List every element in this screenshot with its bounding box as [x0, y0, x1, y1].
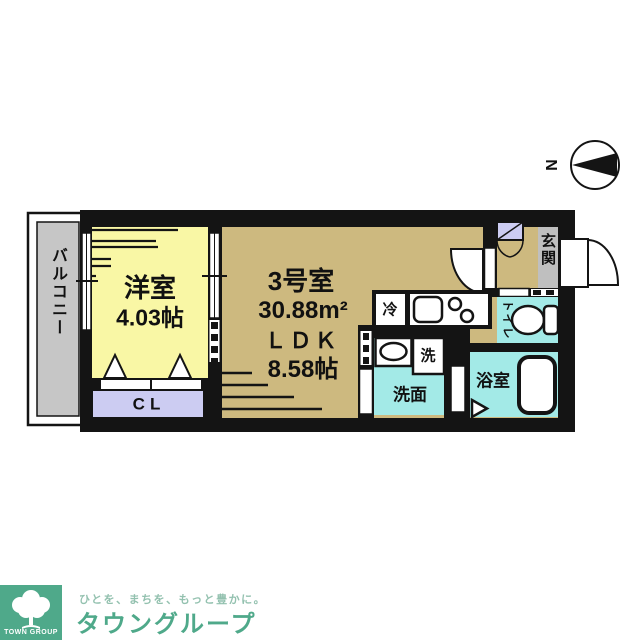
- room-label-entrance: 玄関: [540, 233, 555, 267]
- label-fridge: 冷: [382, 303, 397, 318]
- room-label-balcony: バルコニー: [49, 247, 65, 337]
- front-door-swing-icon: [588, 240, 618, 285]
- room-size-western-room: 4.03帖: [116, 307, 184, 330]
- room-label-bathroom: 浴室: [476, 373, 510, 390]
- toilet-door: [499, 289, 529, 297]
- room-label-western-room: 洋室: [124, 275, 176, 301]
- stove-burner-icon: [461, 310, 473, 322]
- toilet-tank-icon: [544, 306, 558, 334]
- room-size-ldk: 8.58帖: [268, 358, 339, 382]
- north-compass: [571, 141, 619, 189]
- stove-burner-icon: [449, 298, 461, 310]
- north-label: N: [541, 159, 559, 171]
- washroom-door: [360, 369, 373, 414]
- toilet-bowl-icon: [512, 306, 544, 334]
- ldk-door: [485, 248, 496, 292]
- room-label-washroom: 洗面: [393, 387, 427, 404]
- label-washer: 洗: [420, 349, 435, 364]
- bathroom-door: [451, 366, 465, 412]
- town-group-text: TOWN GROUP: [0, 629, 62, 636]
- front-door: [560, 239, 618, 287]
- brand-company-name: タウングループ: [76, 604, 257, 639]
- bathtub-icon: [519, 357, 555, 413]
- floorplan-page: バルコニー 洋室 4.03帖 3号室 30.88m² ＬＤＫ 8.58帖 CL …: [0, 0, 640, 640]
- town-group-logo: TOWN GROUP: [0, 585, 62, 640]
- wash-basin-icon: [381, 343, 407, 360]
- room-label-toilet: トイレ: [501, 300, 513, 341]
- room-label-ldk: ＬＤＫ: [264, 330, 339, 352]
- room-label-unit: 3号室: [268, 268, 334, 294]
- kitchen-sink-icon: [414, 297, 442, 322]
- room-label-closet: CL: [133, 396, 166, 413]
- room-area-unit: 30.88m²: [258, 299, 347, 323]
